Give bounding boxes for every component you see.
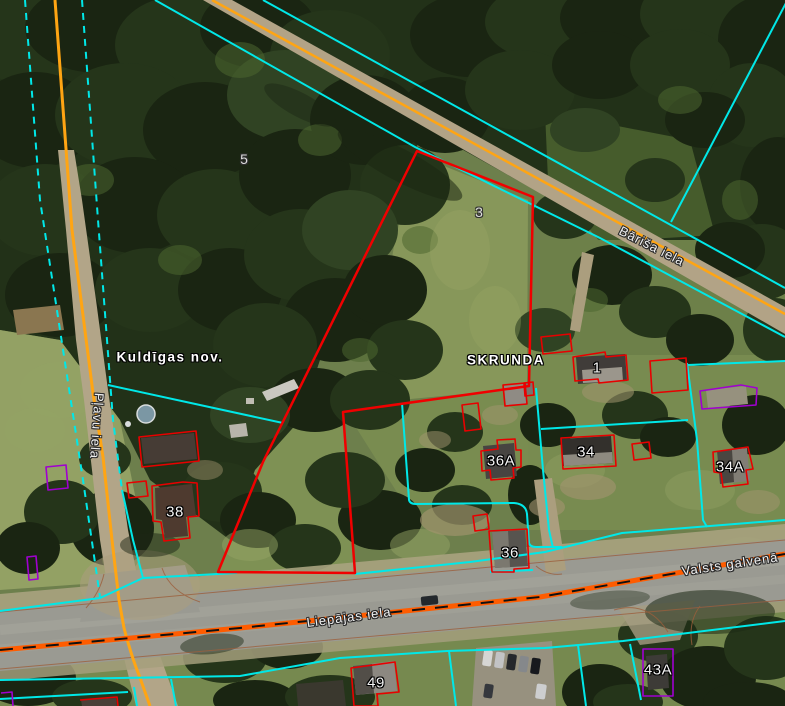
map-viewport[interactable]: 5 3 Kuldīgas nov. SKRUNDA Bāriša iela Pļ… xyxy=(0,0,785,706)
admin-label-kuldigas-nov: Kuldīgas nov. xyxy=(116,350,223,365)
house-label-34a: 34A xyxy=(716,459,744,476)
garden-plot xyxy=(13,305,64,335)
parcel-label-5: 5 xyxy=(240,151,248,167)
house-label-36: 36 xyxy=(501,545,519,562)
parcel-label-3: 3 xyxy=(475,204,483,220)
house-label-1: 1 xyxy=(593,360,602,377)
car-on-road xyxy=(421,595,439,606)
house-label-34: 34 xyxy=(577,444,595,461)
pool xyxy=(137,405,155,423)
house-label-43a: 43A xyxy=(644,662,672,679)
admin-label-skrunda: SKRUNDA xyxy=(467,353,545,368)
house-label-36a: 36A xyxy=(487,453,515,470)
house-label-38: 38 xyxy=(166,504,184,521)
house-label-49: 49 xyxy=(367,675,385,692)
